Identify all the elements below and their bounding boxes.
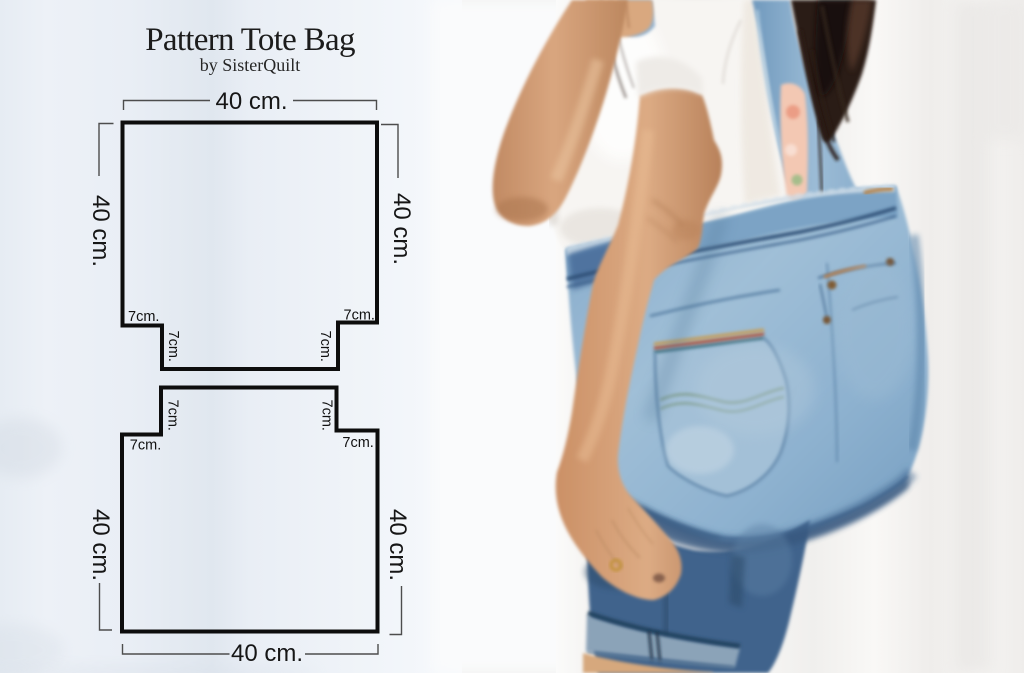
svg-text:by SisterQuilt: by SisterQuilt [200,55,301,75]
svg-text:7cm.: 7cm. [342,435,373,451]
svg-text:7cm.: 7cm. [128,309,159,325]
svg-text:40 cm.: 40 cm. [388,193,415,265]
svg-text:7cm.: 7cm. [130,438,161,454]
svg-text:40 cm.: 40 cm. [231,640,303,667]
svg-text:7cm.: 7cm. [165,400,181,431]
svg-text:7cm.: 7cm. [317,331,333,362]
svg-text:40 cm.: 40 cm. [384,509,411,581]
svg-text:7cm.: 7cm. [319,400,335,431]
svg-text:40 cm.: 40 cm. [87,509,114,581]
svg-text:7cm.: 7cm. [165,331,181,362]
svg-text:40 cm.: 40 cm. [215,88,287,115]
svg-text:7cm.: 7cm. [344,308,375,324]
svg-text:40 cm.: 40 cm. [87,195,114,267]
svg-text:Pattern Tote Bag: Pattern Tote Bag [145,22,355,58]
